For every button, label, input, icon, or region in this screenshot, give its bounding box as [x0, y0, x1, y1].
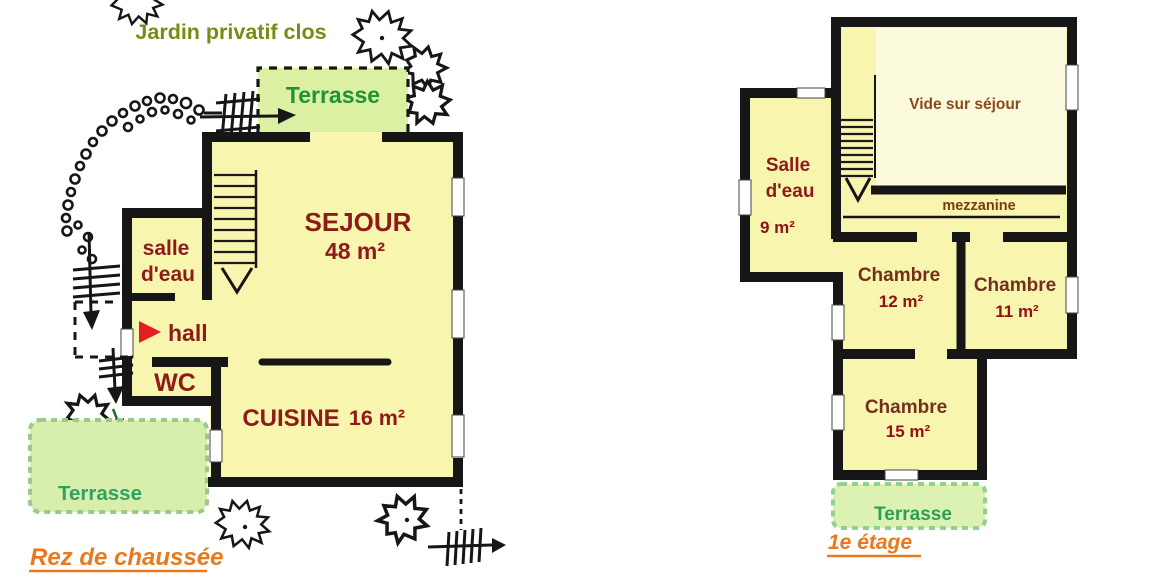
rear-gate-arrow-head: [492, 538, 506, 553]
chambre12-label: Chambre: [858, 265, 940, 286]
vide-label: Vide sur séjour: [909, 96, 1021, 113]
terrace-first: Terrasse: [833, 484, 985, 528]
window-marker: [885, 470, 918, 480]
garden-label: Jardin privatif clos: [135, 20, 326, 44]
mezzanine-label: mezzanine: [942, 198, 1015, 214]
window-marker: [452, 178, 464, 216]
floor-plans-svg: Jardin privatif clos: [0, 0, 1152, 586]
terrace-ground: Terrasse: [30, 420, 207, 512]
window-marker: [452, 415, 464, 457]
window-marker: [210, 430, 222, 462]
window-marker: [797, 88, 825, 98]
wc-label: WC: [154, 369, 196, 397]
salle-eau-first-label-1: Salle: [766, 155, 810, 176]
terrace-first-label: Terrasse: [874, 504, 952, 525]
ground-floor-title: Rez de chaussée: [30, 544, 223, 571]
cuisine-label: CUISINE: [242, 405, 339, 432]
chambre15-label: Chambre: [865, 397, 947, 418]
window-marker: [832, 305, 844, 340]
terrace-top-label: Terrasse: [286, 82, 380, 108]
terrace-ground-label: Terrasse: [58, 482, 142, 505]
salle-eau-label-2: d'eau: [141, 263, 195, 286]
salle-eau-first-area-label: 9 m²: [760, 218, 795, 237]
porch-arrow-head: [107, 386, 124, 404]
sejour-label: SEJOUR: [305, 207, 412, 237]
window-marker: [832, 395, 844, 430]
salle-eau-first-label-2: d'eau: [766, 181, 815, 202]
window-marker: [739, 180, 751, 215]
chambre12-area-label: 12 m²: [879, 292, 924, 311]
chambre11-label: Chambre: [974, 275, 1056, 296]
first-floor-title: 1e étage: [828, 531, 912, 554]
cuisine-area-label: 16 m²: [349, 406, 405, 430]
floor-plan-image: Jardin privatif clos: [0, 0, 1152, 586]
chambre15-area-label: 15 m²: [886, 422, 931, 441]
sejour-area-label: 48 m²: [325, 238, 385, 264]
window-marker: [1066, 65, 1078, 110]
chambre11-area-label: 11 m²: [995, 302, 1039, 321]
salle-eau-label-1: salle: [143, 237, 190, 260]
window-marker: [452, 290, 464, 338]
hall-label: hall: [168, 320, 208, 346]
front-door-opening: [121, 329, 133, 357]
first-floor-plan: Vide sur séjour mezzanine Salle d'eau 9 …: [739, 17, 1078, 556]
ground-floor-plan: Jardin privatif clos: [29, 0, 506, 571]
rear-gate: [428, 489, 506, 566]
window-marker: [1066, 277, 1078, 313]
entry-path-arrow-head: [83, 310, 100, 330]
